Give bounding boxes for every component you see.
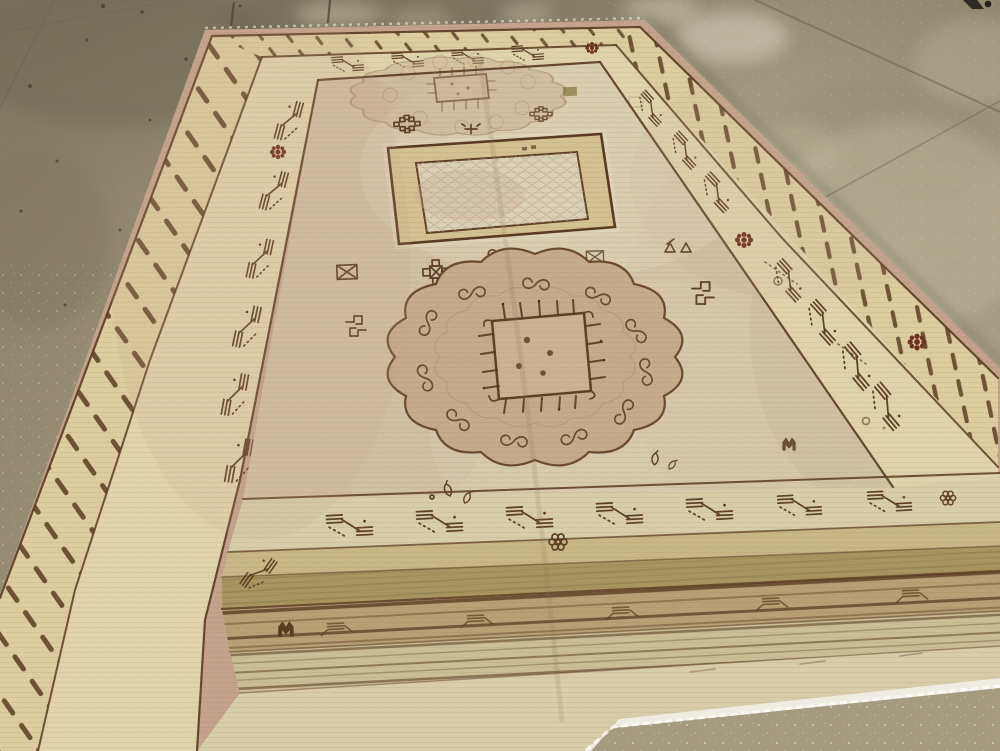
photo-canvas: Faded antique Khotan carpet lying at an …: [0, 0, 1000, 751]
scene-photo: Faded antique Khotan carpet lying at an …: [0, 0, 1000, 751]
